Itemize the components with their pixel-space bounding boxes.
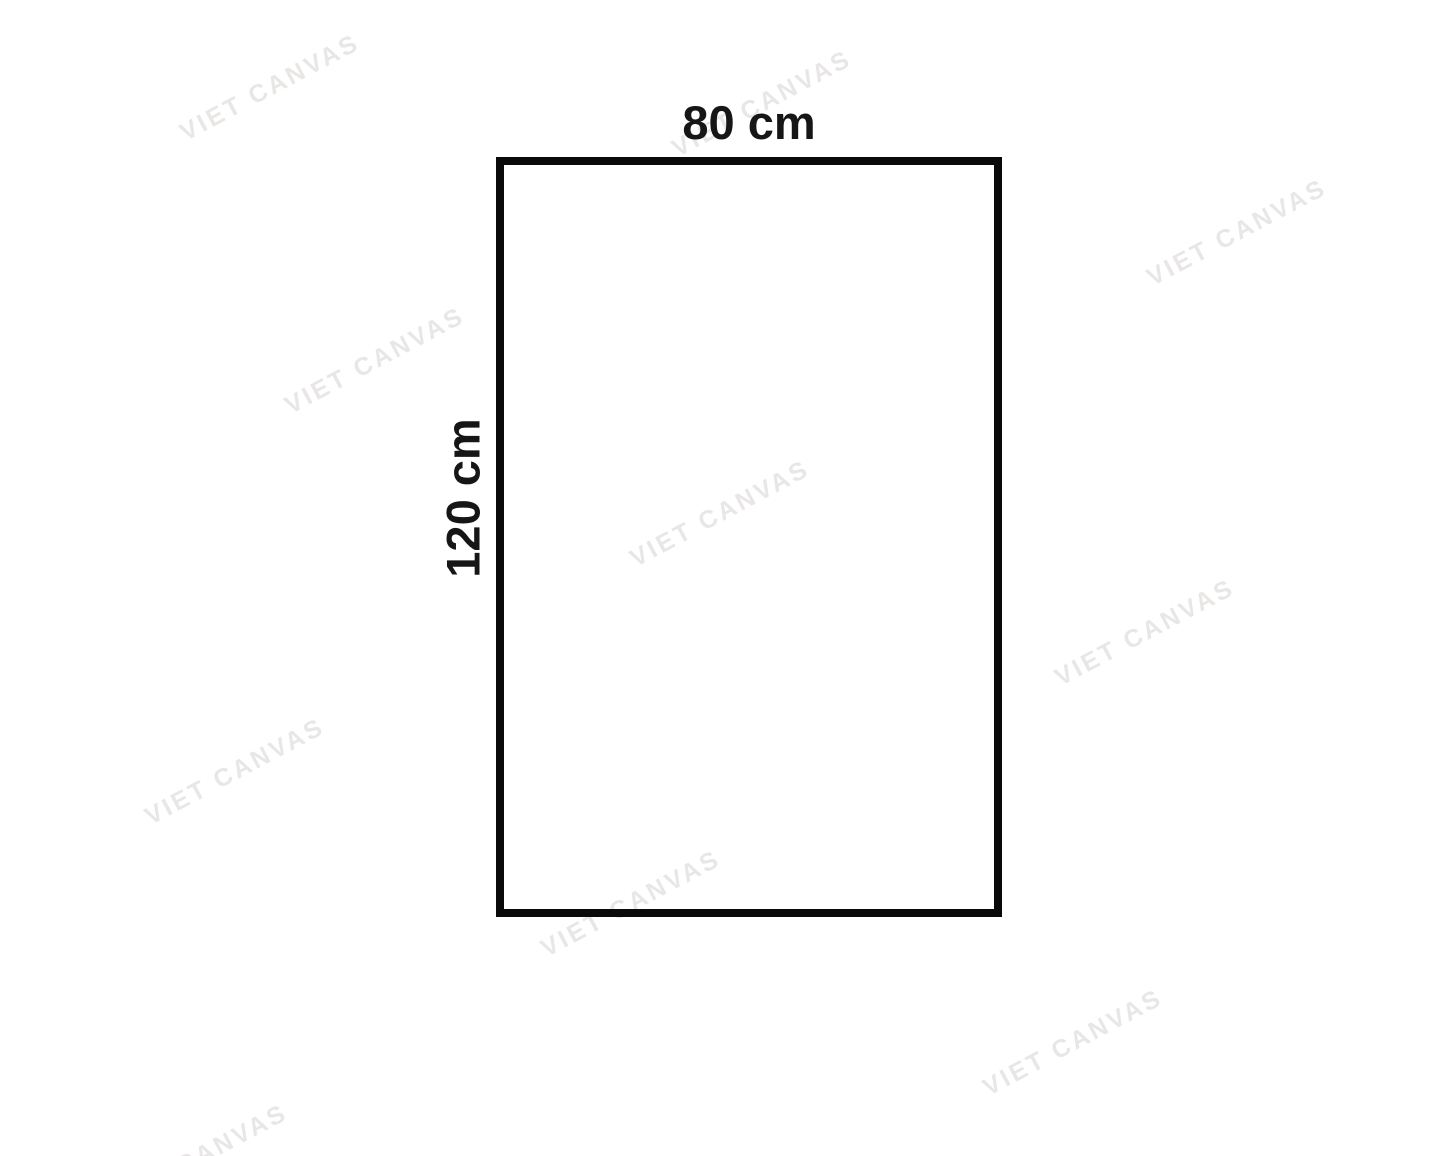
watermark-text: VIET CANVAS (978, 983, 1168, 1102)
height-dimension-label: 120 cm (440, 418, 487, 577)
watermark-text: VIET CANVAS (103, 1098, 293, 1156)
watermark-text: VIET CANVAS (280, 301, 470, 420)
product-dimension-image: VIET CANVAS VIET CANVAS VIET CANVAS VIET… (0, 0, 1445, 1156)
watermark-text: VIET CANVAS (1050, 573, 1240, 692)
watermark-text: VIET CANVAS (1142, 173, 1332, 292)
canvas-outline-rectangle (496, 157, 1002, 917)
watermark-text: VIET CANVAS (175, 28, 365, 147)
watermark-text: VIET CANVAS (140, 712, 330, 831)
width-dimension-label: 80 cm (682, 99, 815, 146)
